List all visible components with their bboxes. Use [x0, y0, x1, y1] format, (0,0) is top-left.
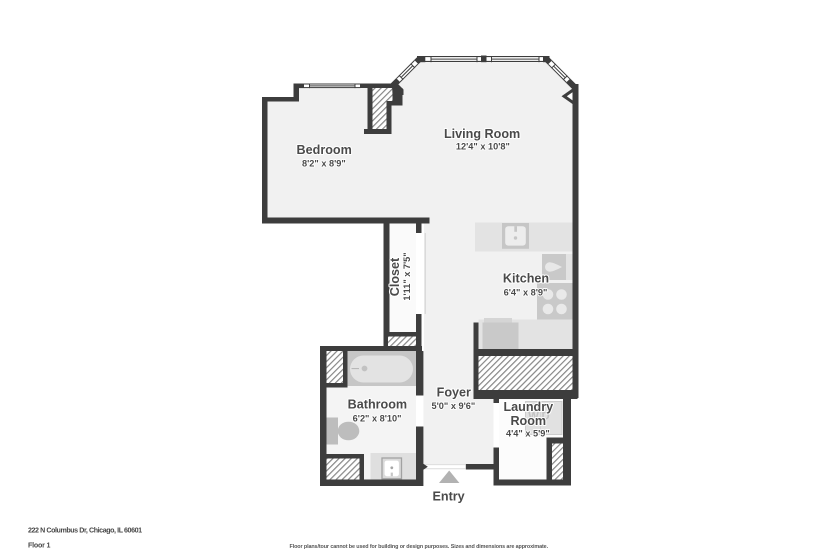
- svg-text:12'4" x 10'8": 12'4" x 10'8": [456, 142, 510, 152]
- svg-text:5'0" x 9'6": 5'0" x 9'6": [432, 401, 476, 411]
- svg-text:6'2" x 8'10": 6'2" x 8'10": [353, 414, 402, 424]
- svg-text:222 N Columbus Dr, Chicago, IL: 222 N Columbus Dr, Chicago, IL 60601: [28, 527, 142, 535]
- svg-text:8'2" x 8'9": 8'2" x 8'9": [302, 159, 346, 169]
- svg-text:4'4" x 5'9": 4'4" x 5'9": [506, 429, 550, 439]
- svg-text:Floor plans/tour cannot be use: Floor plans/tour cannot be used for buil…: [290, 544, 549, 550]
- svg-text:1'11" x 7'5": 1'11" x 7'5": [402, 252, 412, 300]
- svg-text:Entry: Entry: [432, 490, 464, 504]
- svg-text:Laundry: Laundry: [503, 400, 553, 414]
- svg-text:Floor 1: Floor 1: [28, 542, 51, 550]
- svg-text:Room: Room: [510, 414, 546, 428]
- svg-text:Bedroom: Bedroom: [297, 143, 352, 157]
- svg-text:6'4" x 8'9": 6'4" x 8'9": [504, 287, 548, 297]
- svg-text:Kitchen: Kitchen: [503, 272, 549, 286]
- svg-text:Living Room: Living Room: [444, 127, 520, 141]
- svg-text:Bathroom: Bathroom: [348, 397, 407, 411]
- svg-text:Closet: Closet: [388, 257, 402, 296]
- svg-text:Foyer: Foyer: [437, 386, 471, 400]
